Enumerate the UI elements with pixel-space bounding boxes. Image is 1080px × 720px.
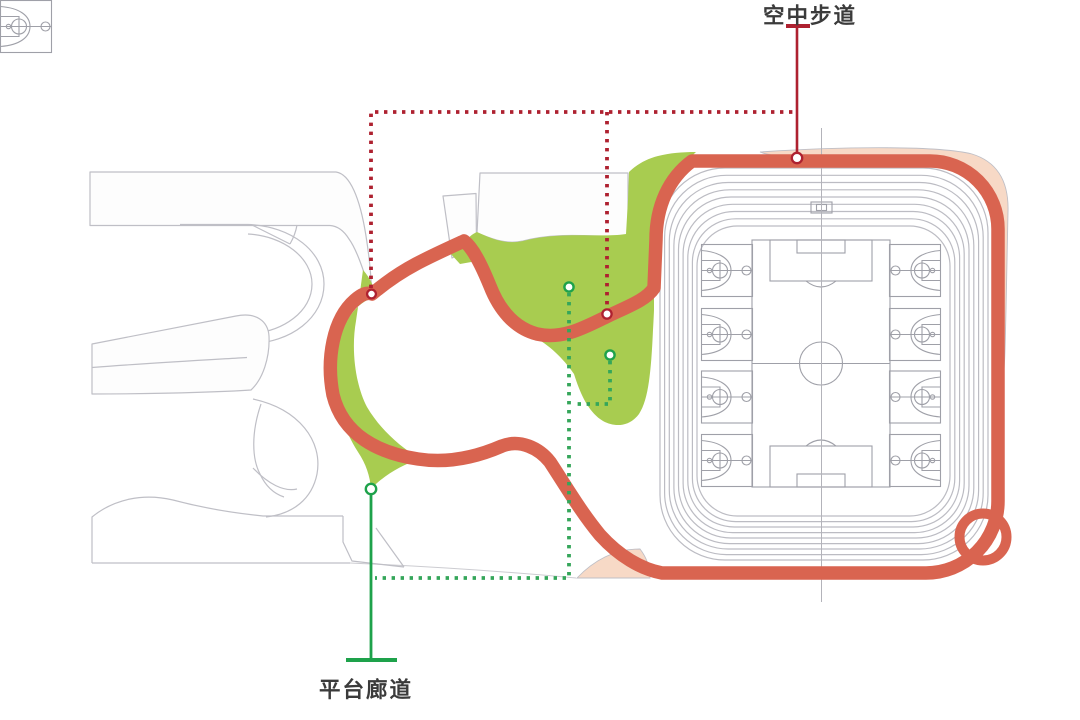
building-wedge-bottom [343,516,404,567]
building-slab-middle [92,315,269,394]
building-bar-top [90,172,372,290]
building-outlines [90,172,628,578]
building-petal-leaf [254,404,284,497]
site-plan-canvas: 空中步道 平台廊道 [0,0,1080,720]
walkway-node [602,309,611,318]
walkway-node [792,153,802,163]
platform-corridor-label: 平台廊道 [319,677,413,702]
site-plan-svg: 空中步道 平台廊道 [0,0,1080,720]
corridor-node [366,484,376,494]
corridor-node [564,282,573,291]
building-petal-arc [253,399,318,517]
corridor-node [605,350,614,359]
building-bar-bottom [92,497,350,563]
walkway-node [367,290,376,299]
aerial-walkway-label: 空中步道 [763,3,857,28]
building-petal-cross [253,468,297,490]
